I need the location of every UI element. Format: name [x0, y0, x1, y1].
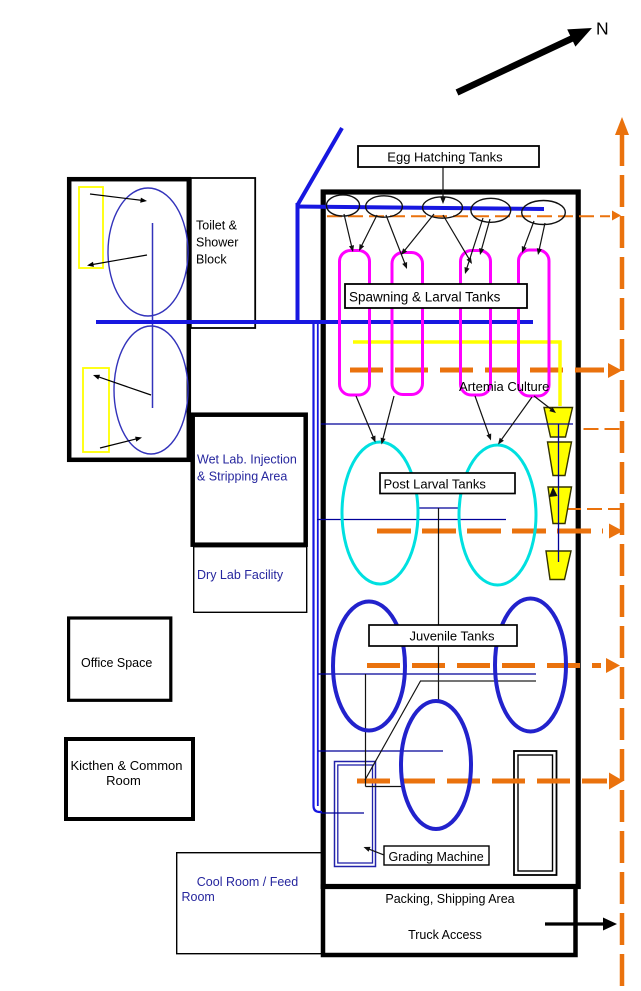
svg-text:Egg Hatching Tanks: Egg Hatching Tanks [387, 150, 503, 165]
svg-text:Toilet &: Toilet & [196, 219, 238, 233]
svg-text:Office Space: Office Space [81, 656, 152, 670]
svg-text:N: N [596, 19, 609, 39]
svg-text:Cool Room / Feed: Cool Room / Feed [197, 875, 298, 889]
svg-text:Truck Access: Truck Access [408, 928, 482, 942]
svg-text:Room: Room [182, 890, 215, 904]
svg-text:& Stripping Area: & Stripping Area [197, 470, 287, 484]
svg-text:Juvenile Tanks: Juvenile Tanks [409, 629, 495, 644]
svg-text:Room: Room [106, 773, 141, 788]
svg-text:Wet Lab. Injection: Wet Lab. Injection [197, 452, 297, 466]
svg-text:Artemia Culture: Artemia Culture [459, 379, 549, 394]
svg-text:Dry Lab Facility: Dry Lab Facility [197, 568, 284, 582]
svg-text:Post Larval Tanks: Post Larval Tanks [384, 477, 487, 492]
svg-text:Kicthen & Common: Kicthen & Common [71, 758, 183, 773]
svg-text:Grading Machine: Grading Machine [389, 850, 484, 864]
svg-text:Spawning & Larval Tanks: Spawning & Larval Tanks [349, 290, 501, 305]
svg-text:Shower: Shower [196, 236, 238, 250]
svg-text:Packing, Shipping Area: Packing, Shipping Area [385, 892, 514, 906]
svg-text:Block: Block [196, 253, 227, 267]
